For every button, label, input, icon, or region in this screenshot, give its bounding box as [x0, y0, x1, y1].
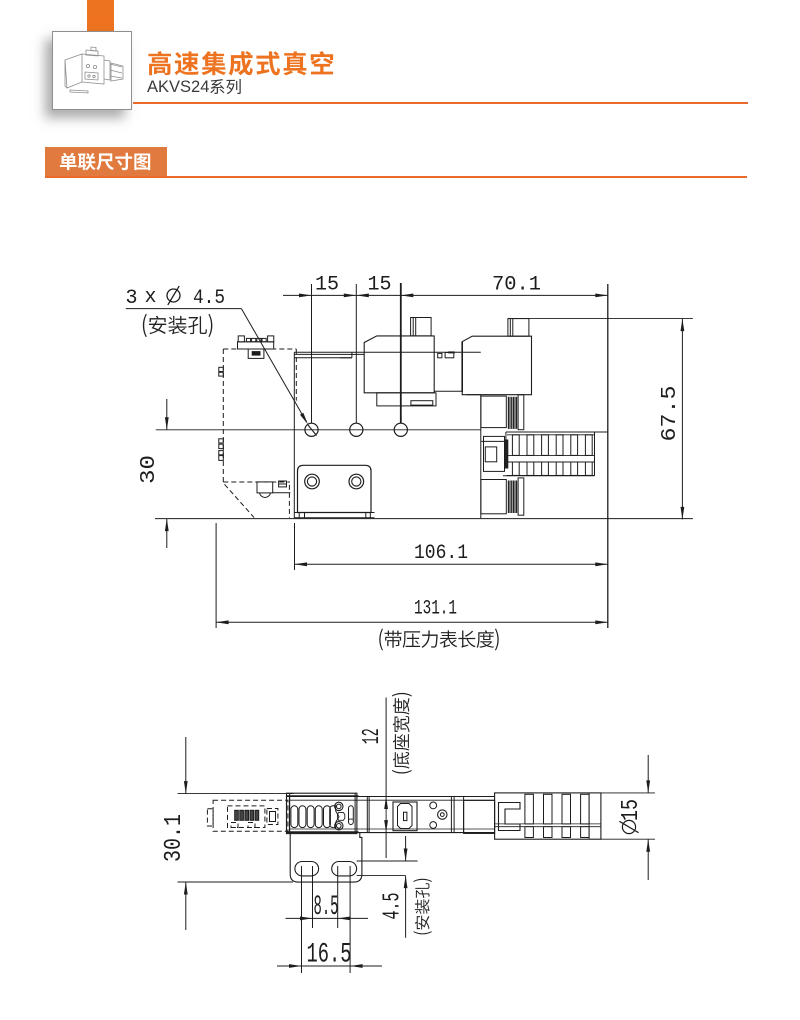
svg-text:4.5: 4.5 — [193, 287, 225, 310]
svg-text:30.1: 30.1 — [161, 814, 188, 862]
svg-text:131.1: 131.1 — [414, 598, 457, 621]
svg-text:67.5: 67.5 — [659, 386, 682, 442]
svg-text:106.1: 106.1 — [414, 542, 468, 565]
svg-text:70.1: 70.1 — [492, 274, 541, 297]
svg-text:16.5: 16.5 — [307, 940, 352, 971]
svg-text:4.5: 4.5 — [380, 893, 407, 920]
svg-text:15: 15 — [618, 799, 645, 821]
svg-text:12: 12 — [359, 728, 386, 744]
svg-text:15: 15 — [367, 274, 391, 297]
svg-text:30: 30 — [138, 455, 161, 484]
svg-text:x: x — [144, 286, 156, 309]
svg-text:3: 3 — [125, 287, 137, 310]
svg-text:8.5: 8.5 — [314, 892, 339, 923]
svg-text:15: 15 — [315, 274, 339, 297]
